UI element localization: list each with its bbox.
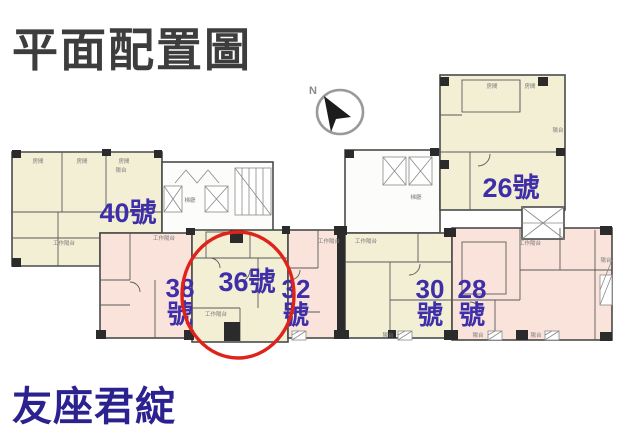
room-label: 工作陽台: [318, 237, 341, 245]
floor-plan-canvas: 平面配置圖 N: [0, 0, 640, 443]
elevator-shaft: [164, 186, 182, 212]
compass: N: [309, 85, 363, 134]
unit-28-label: 28 號: [458, 274, 487, 330]
unit-26-label: 26號: [482, 173, 539, 203]
svg-text:號: 號: [417, 300, 443, 330]
room-label: 梯廳: [184, 196, 196, 204]
room-label: 梯廳: [410, 193, 422, 201]
unit-32-label: 32 號: [282, 274, 311, 330]
svg-text:號: 號: [459, 300, 485, 330]
room-label: 陽台: [115, 166, 127, 174]
room-label: 房間: [118, 157, 130, 165]
room-label: 房間: [76, 157, 88, 165]
floor-plan-page: 平面配置圖 N: [0, 0, 640, 443]
room-label: 陽台: [472, 331, 484, 339]
unit-36-label: 36號: [218, 267, 275, 297]
room-label: 陽台: [552, 126, 564, 134]
room-label: 工作陽台: [205, 310, 228, 318]
room-label: 工作陽台: [519, 239, 542, 247]
unit-38-label: 38 號: [166, 273, 195, 329]
room-label: 陽台: [530, 331, 542, 339]
unit-30-label: 30 號: [416, 274, 445, 330]
project-name: 友座君綻: [12, 385, 176, 429]
room-label: 工作陽台: [53, 239, 76, 247]
room-label: 工作陽台: [153, 234, 176, 242]
elevator-shaft: [409, 157, 432, 185]
room-label: 陽台: [600, 256, 612, 264]
room-label: 房間: [524, 82, 536, 90]
unit-40-label: 40號: [99, 198, 156, 228]
elevator-shaft: [383, 157, 406, 185]
room-label: 工作陽台: [355, 237, 378, 245]
elevator-shaft: [205, 186, 228, 212]
page-title: 平面配置圖: [12, 24, 252, 76]
room-label: 房間: [32, 157, 44, 165]
compass-north-label: N: [309, 85, 317, 97]
room-label: 陽台: [382, 331, 394, 339]
room-label: 房間: [486, 82, 498, 90]
